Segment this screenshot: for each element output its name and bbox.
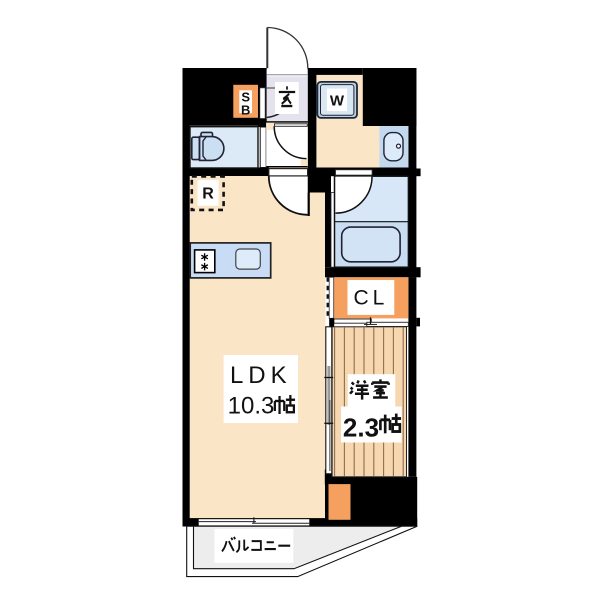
svg-text:2.3: 2.3 — [343, 413, 379, 443]
svg-text:W: W — [330, 93, 345, 110]
svg-text:LDK: LDK — [230, 362, 292, 389]
svg-text:R: R — [202, 186, 214, 203]
svg-text:B: B — [241, 103, 250, 118]
svg-text:10.3: 10.3 — [228, 393, 275, 420]
svg-text:CL: CL — [353, 287, 388, 310]
